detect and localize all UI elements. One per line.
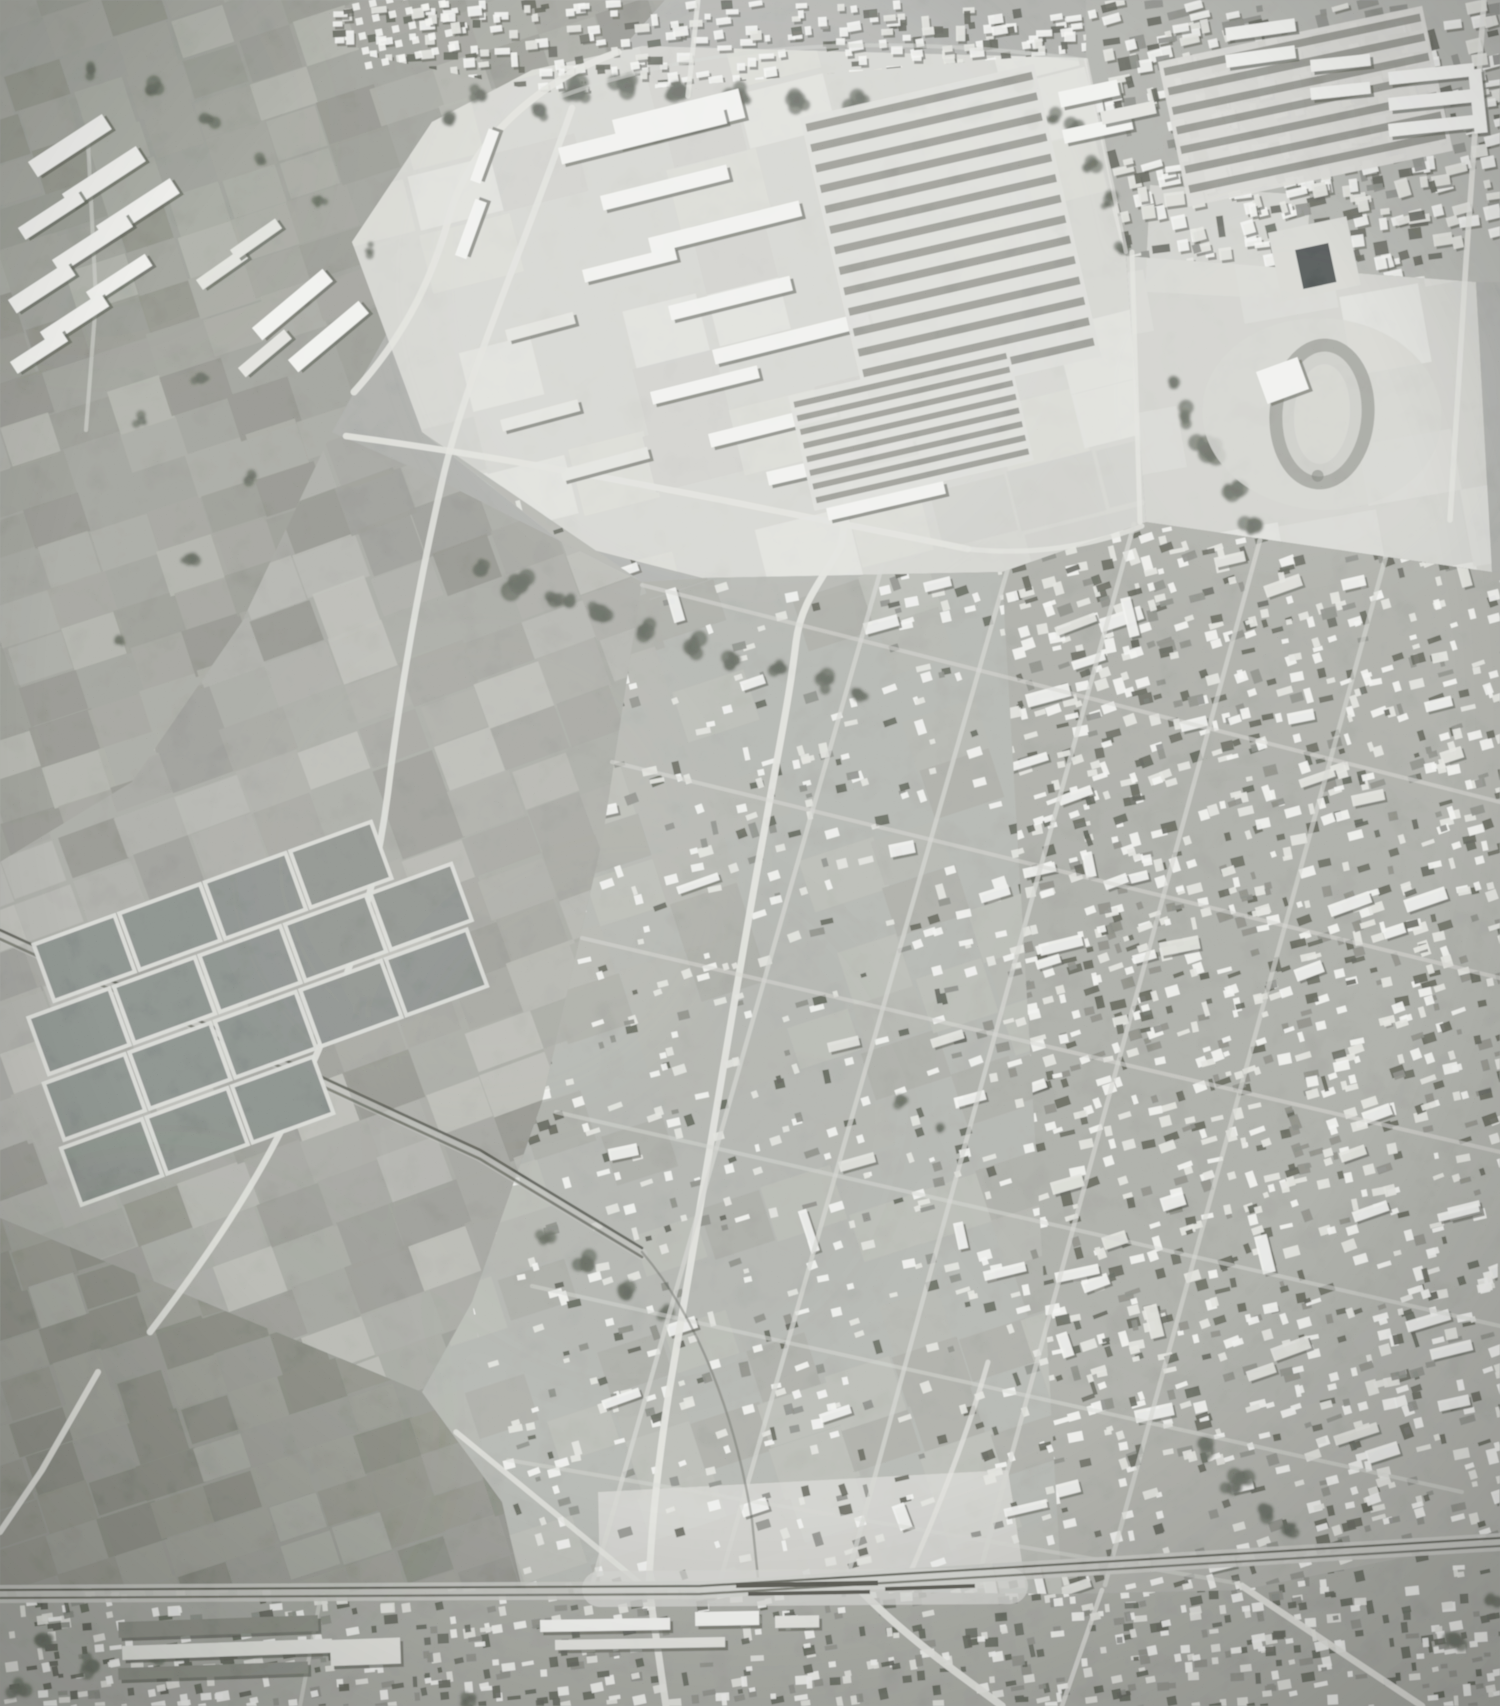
screenshot-frame bbox=[0, 0, 1500, 1706]
aerial-photo bbox=[0, 0, 1500, 1706]
